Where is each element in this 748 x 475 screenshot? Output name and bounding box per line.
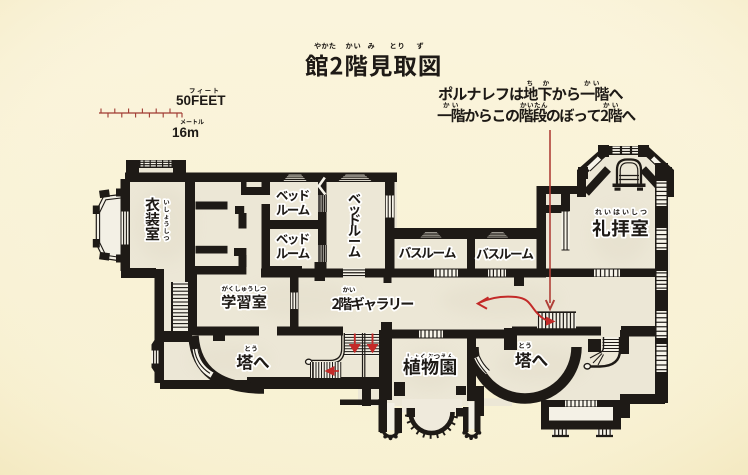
svg-text:16m: 16m [172,125,199,140]
svg-text:50FEET: 50FEET [176,93,226,108]
